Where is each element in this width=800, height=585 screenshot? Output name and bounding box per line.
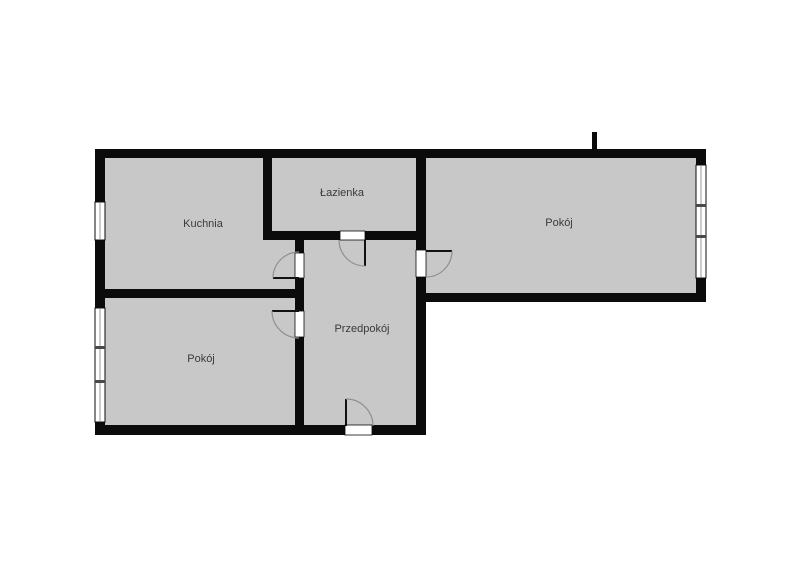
door-opening-entrance	[345, 425, 372, 435]
exterior-wall-bottom	[95, 425, 426, 435]
wall-bathroom-bottom	[263, 231, 416, 240]
room-label-kitchen: Kuchnia	[183, 218, 224, 230]
chimney-vent-mark	[592, 132, 597, 151]
exterior-wall-top	[95, 149, 706, 158]
wall-hall-right	[416, 149, 426, 435]
room-label-room-left: Pokój	[187, 353, 215, 365]
exterior-wall-room-right-bottom	[416, 293, 706, 302]
room-label-room-right: Pokój	[545, 217, 573, 229]
door-opening-bathroom	[340, 231, 365, 240]
window-room-left-mullion-2	[95, 380, 105, 383]
window-room-right-mullion-2	[696, 235, 706, 238]
room-label-bathroom: Łazienka	[320, 187, 365, 199]
window-room-right	[696, 165, 706, 278]
window-kitchen	[95, 202, 105, 240]
floorplan-canvas: Kuchnia Łazienka Pokój Przedpokój Pokój	[0, 0, 800, 585]
wall-kitchen-room-divider	[95, 289, 304, 298]
window-room-right-mullion-1	[696, 204, 706, 207]
door-opening-room-right	[416, 250, 426, 277]
door-opening-room-left	[295, 311, 304, 337]
room-label-hallway: Przedpokój	[334, 323, 389, 335]
door-opening-kitchen	[295, 253, 304, 278]
wall-bathroom-left	[263, 149, 272, 240]
window-room-left	[95, 308, 105, 422]
floorplan-drawing: Kuchnia Łazienka Pokój Przedpokój Pokój	[0, 0, 800, 585]
window-room-left-mullion-1	[95, 346, 105, 349]
